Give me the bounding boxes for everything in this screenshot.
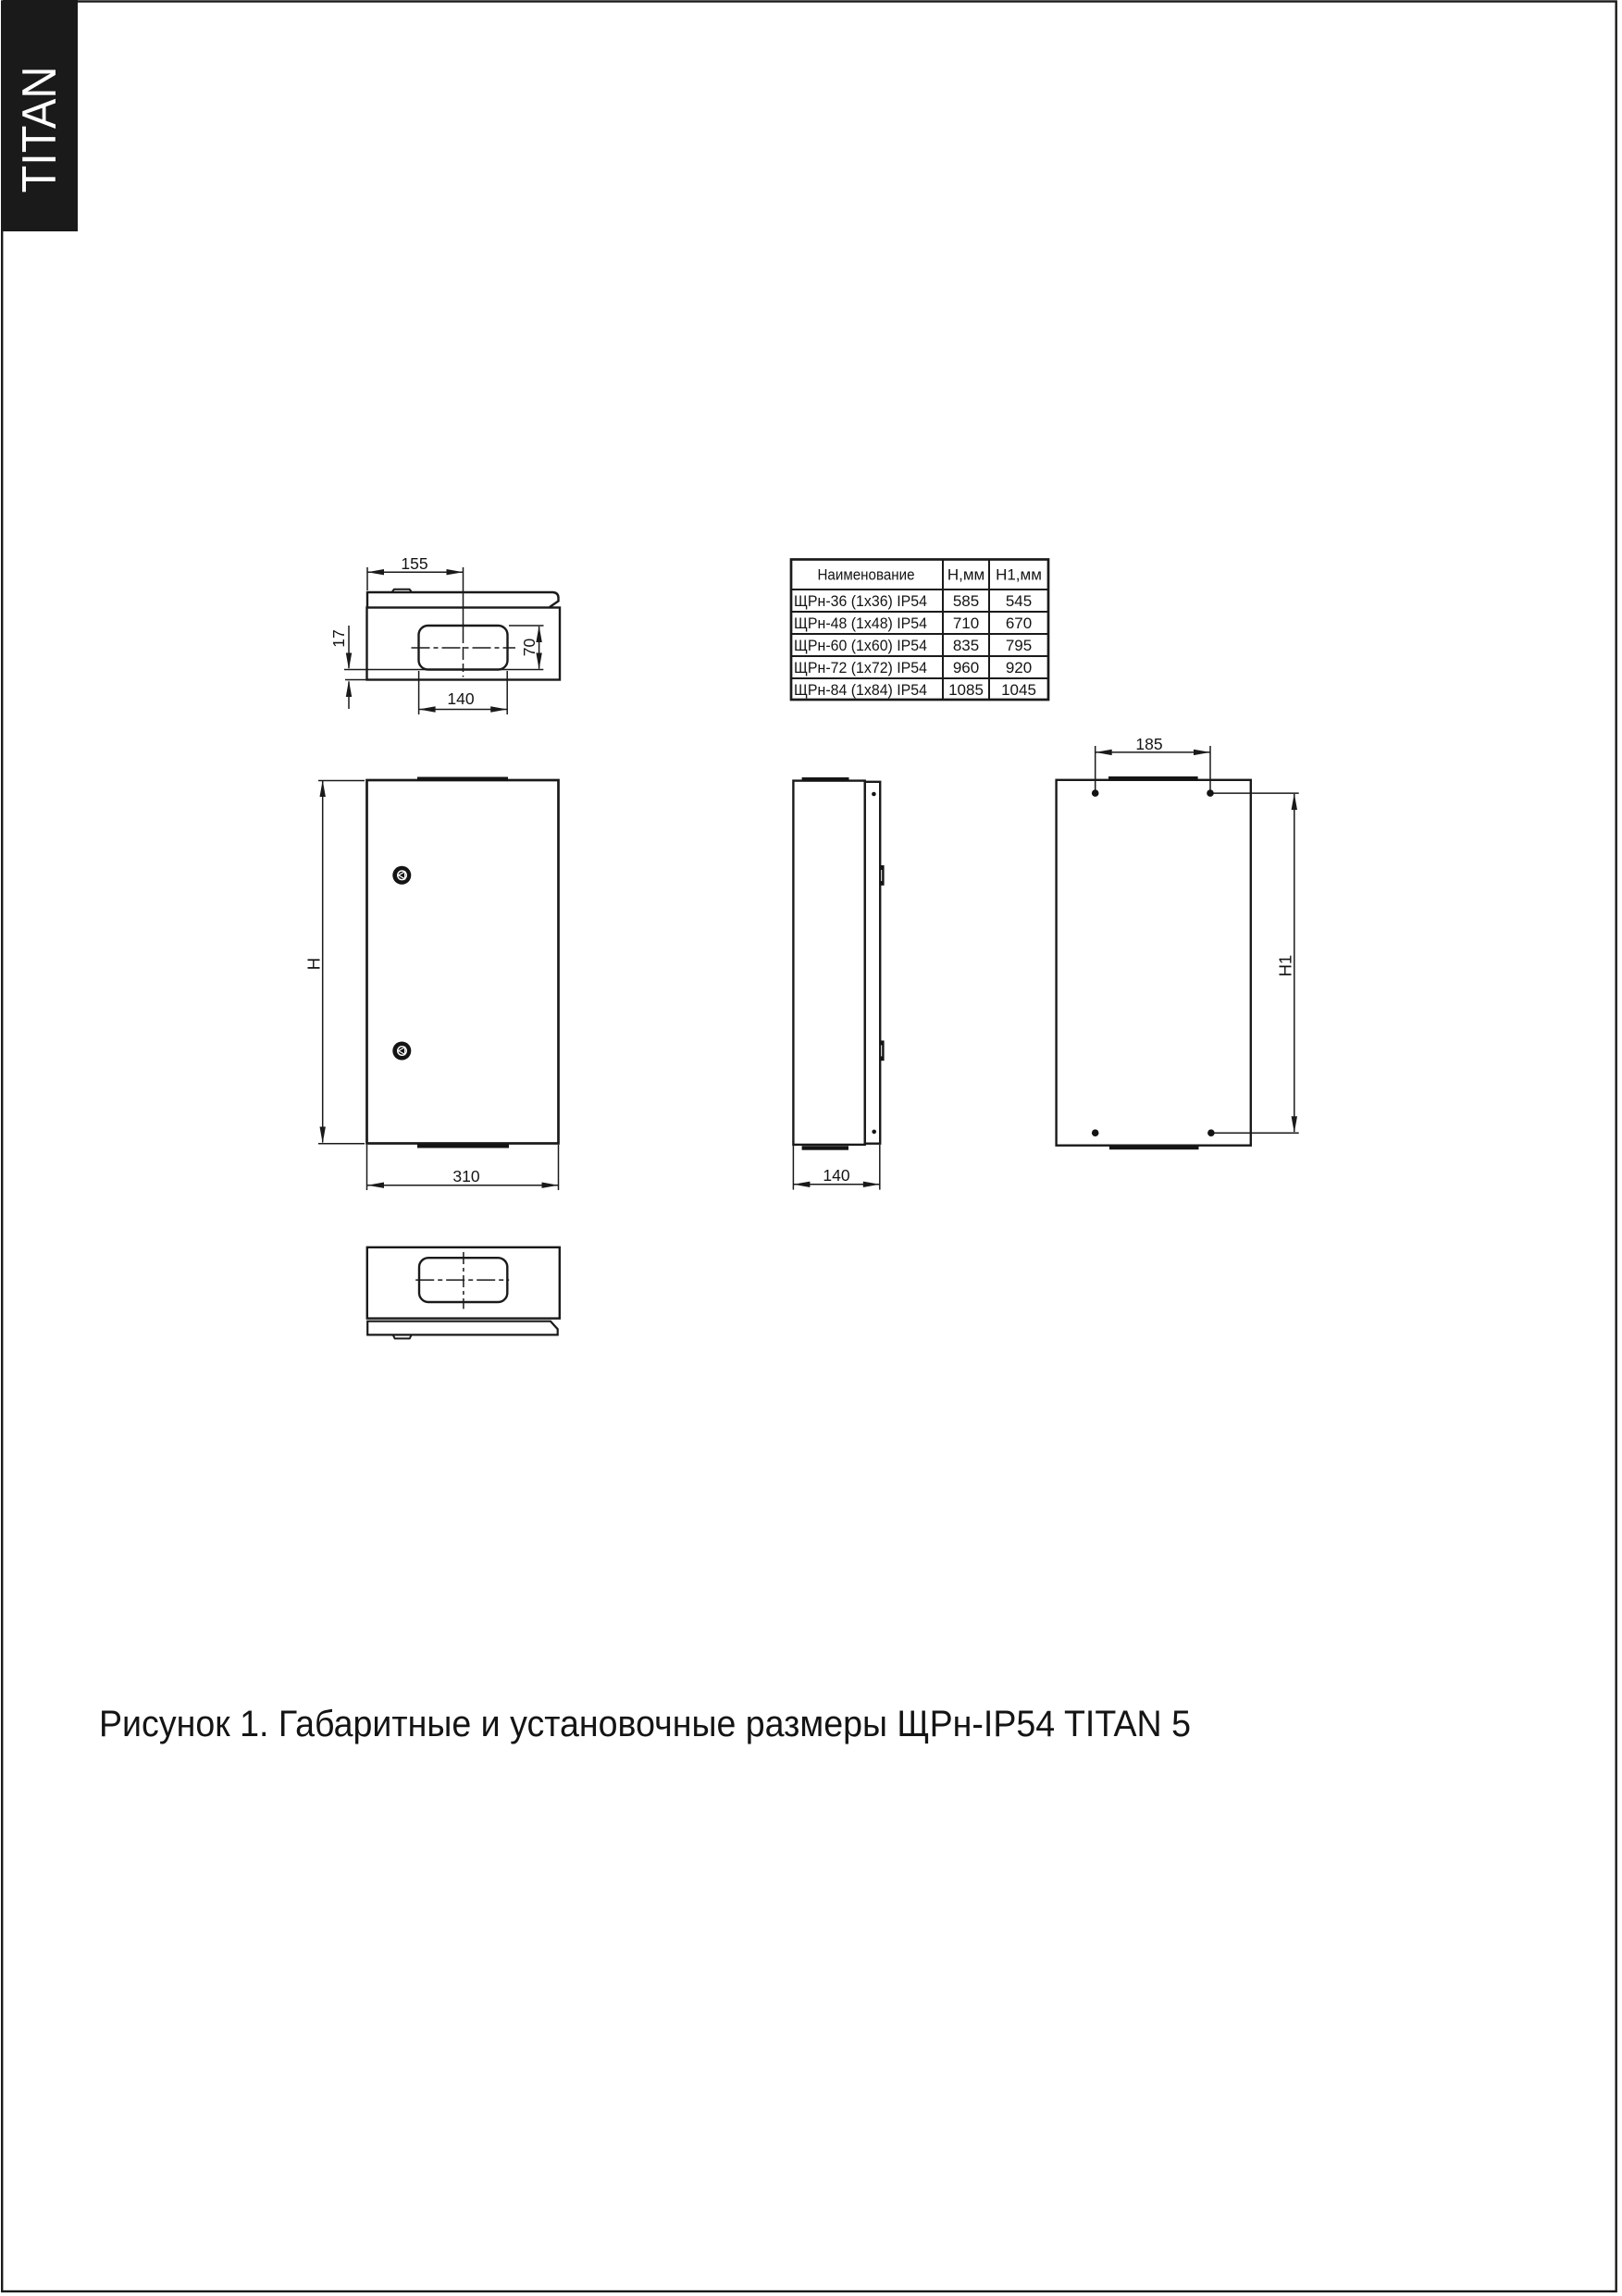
svg-text:ЩРн-60 (1х60) IP54: ЩРн-60 (1х60) IP54	[794, 637, 927, 654]
svg-text:ЩРн-36 (1х36) IP54: ЩРн-36 (1х36) IP54	[794, 592, 927, 610]
svg-text:17: 17	[329, 629, 348, 647]
svg-text:ЩРн-72 (1х72) IP54: ЩРн-72 (1х72) IP54	[794, 659, 927, 676]
svg-text:1045: 1045	[1001, 681, 1036, 699]
svg-text:140: 140	[823, 1166, 849, 1185]
svg-text:140: 140	[447, 689, 474, 708]
svg-text:TITAN: TITAN	[13, 67, 67, 193]
svg-text:ЩРн-48 (1х48) IP54: ЩРн-48 (1х48) IP54	[794, 614, 927, 632]
svg-text:710: 710	[953, 614, 979, 632]
svg-text:670: 670	[1006, 614, 1032, 632]
svg-text:Рисунок 1. Габаритные и устано: Рисунок 1. Габаритные и установочные раз…	[99, 1704, 1191, 1744]
svg-text:920: 920	[1006, 659, 1032, 676]
svg-text:835: 835	[953, 637, 979, 654]
svg-text:545: 545	[1006, 592, 1032, 610]
svg-text:ЩРн-84 (1х84) IP54: ЩРн-84 (1х84) IP54	[794, 681, 927, 699]
svg-text:70: 70	[520, 639, 539, 657]
svg-text:Наименование: Наименование	[818, 566, 915, 584]
svg-text:185: 185	[1135, 735, 1162, 753]
svg-text:795: 795	[1006, 637, 1032, 654]
svg-text:Н: Н	[304, 958, 324, 970]
svg-text:310: 310	[452, 1167, 479, 1185]
svg-text:Н,мм: Н,мм	[947, 566, 984, 584]
svg-text:155: 155	[401, 554, 427, 573]
svg-text:Н1: Н1	[1275, 955, 1294, 977]
svg-text:585: 585	[953, 592, 979, 610]
svg-text:960: 960	[953, 659, 979, 676]
svg-text:Н1,мм: Н1,мм	[996, 566, 1042, 584]
svg-text:1085: 1085	[948, 681, 984, 699]
